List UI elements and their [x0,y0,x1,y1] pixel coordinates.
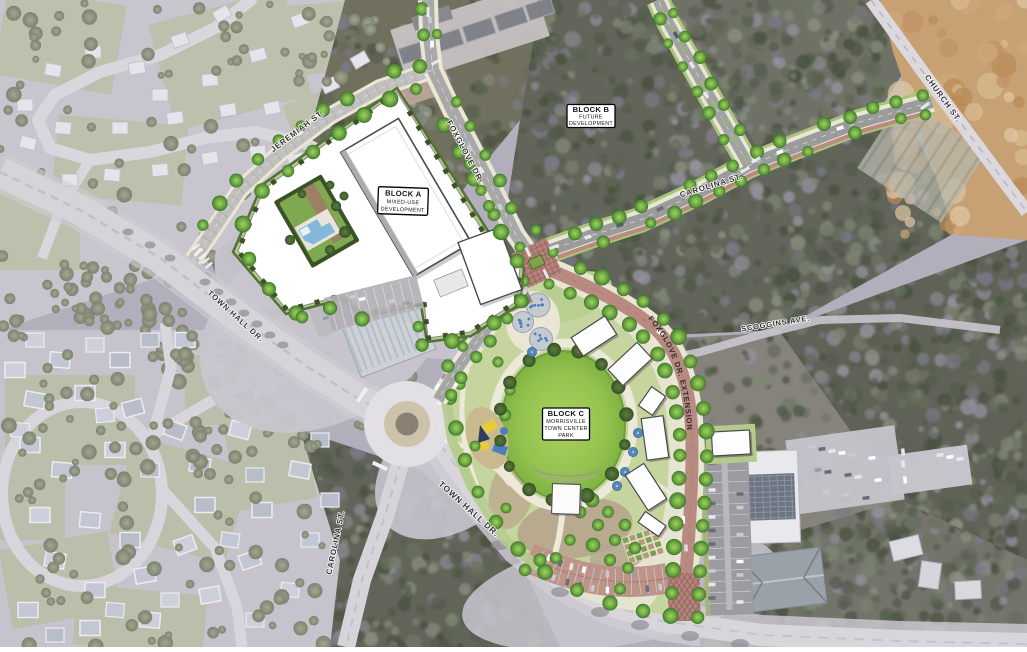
svg-text:FUTURE: FUTURE [579,115,603,121]
svg-text:BLOCK C: BLOCK C [548,409,585,418]
svg-text:BLOCK B: BLOCK B [573,105,610,114]
svg-text:MORRISVILLE: MORRISVILLE [546,419,586,425]
svg-text:MIXED-USE: MIXED-USE [387,199,420,206]
svg-text:TOWN CENTER: TOWN CENTER [544,426,587,432]
svg-text:BLOCK A: BLOCK A [385,189,422,199]
svg-text:PARK: PARK [558,433,574,439]
svg-text:DEVELOPMENT: DEVELOPMENT [569,121,613,127]
